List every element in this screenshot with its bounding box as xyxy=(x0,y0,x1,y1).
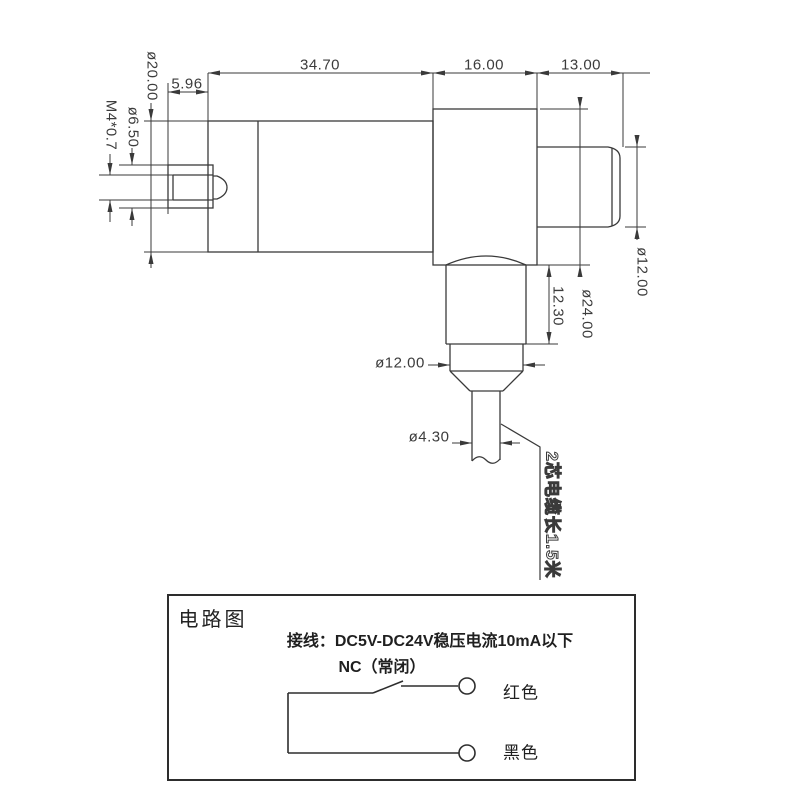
dim-label-body-length: 34.70 xyxy=(300,58,340,73)
contact-type-label: NC（常闭） xyxy=(338,660,425,676)
dimension-lines xyxy=(99,73,650,443)
dim-label-block-length: 16.00 xyxy=(464,58,504,73)
dim-label-tip-diameter: ø12.00 xyxy=(635,247,650,297)
circuit-title: 电路图 xyxy=(179,610,248,630)
dim-label-stud-diameter: ø6.50 xyxy=(126,107,141,148)
dim-label-tip-length: 13.00 xyxy=(561,58,601,73)
terminal-black-circle xyxy=(459,745,475,761)
dim-label-neck-length: 12.30 xyxy=(551,286,566,326)
arrowheads xyxy=(108,71,640,446)
cable-note-label: 2芯电缆长1.5米 xyxy=(544,451,561,578)
circuit-wires xyxy=(288,681,459,753)
technical-drawing-page: 34.70 16.00 13.00 5.96 ø20.00 ø6.50 M4*0… xyxy=(0,0,800,800)
wiring-note-label: 接线：DC5V-DC24V稳压电流10mA以下 xyxy=(287,634,573,650)
terminal-red-circle xyxy=(459,678,475,694)
dim-label-block-diameter: ø24.00 xyxy=(580,289,595,339)
dim-label-flange-diameter: ø20.00 xyxy=(145,51,160,101)
cable-leader-line xyxy=(501,424,540,580)
dim-label-gland-diameter: ø12.00 xyxy=(375,356,425,371)
red-wire-label: 红色 xyxy=(503,685,539,702)
technical-drawing-canvas xyxy=(0,0,800,800)
dim-label-stud-protrusion: 5.96 xyxy=(171,77,202,92)
dim-label-cable-diameter: ø4.30 xyxy=(409,430,450,445)
black-wire-label: 黑色 xyxy=(503,745,539,762)
dim-label-thread-spec: M4*0.7 xyxy=(104,100,119,151)
